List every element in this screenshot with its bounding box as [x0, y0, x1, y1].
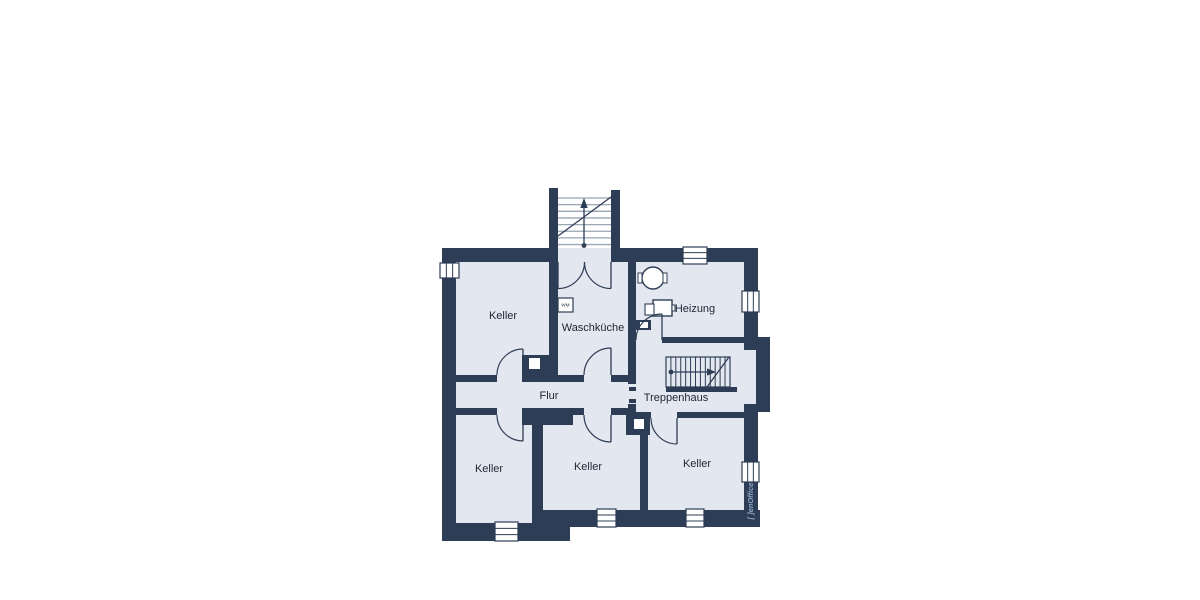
floor-door-opening — [584, 375, 611, 382]
wall-flur-top-c — [611, 375, 628, 382]
wall-exterior-stair-left — [549, 188, 558, 382]
floor-waschkueche — [558, 262, 628, 375]
room-label-keller-upper-left: Keller — [489, 310, 517, 322]
wall-exterior-bottom-step — [543, 510, 570, 541]
wall-keller-divider-left — [532, 415, 543, 523]
wall-flur-top-b — [555, 375, 584, 382]
window-right-heizung — [742, 291, 759, 312]
chimney-flue — [634, 419, 644, 429]
interior-stair-arrow-dot — [669, 370, 674, 375]
wall-exterior-top-left — [442, 248, 558, 262]
floor-door-opening — [497, 375, 523, 382]
logo-text: [ ]enOffice — [746, 483, 755, 521]
wall-exterior-left — [442, 248, 456, 541]
room-label-keller-lower-right: Keller — [683, 458, 711, 470]
wall-heizung-bottom — [662, 337, 744, 343]
wall-below-threshold — [628, 404, 636, 412]
room-label-treppenhaus: Treppenhaus — [644, 392, 709, 404]
room-label-keller-lower-middle: Keller — [574, 461, 602, 473]
wall-exterior-bottom-left — [442, 523, 543, 541]
floor-door-opening — [497, 408, 523, 415]
window-top-wall — [683, 247, 707, 264]
threshold-dash — [629, 399, 636, 403]
heater-box-small — [645, 304, 654, 315]
wall-exterior-stair-right — [611, 190, 620, 262]
boiler-nub — [638, 273, 642, 283]
heater-box — [653, 300, 672, 316]
window-right-keller — [742, 462, 759, 482]
room-label-keller-lower-left: Keller — [475, 463, 503, 475]
wall-wasch-heizung — [628, 262, 636, 384]
washing-machine-label: WM — [561, 303, 569, 308]
exterior-stair-arrow-head — [580, 198, 587, 208]
page: KellerWaschkücheHeizungFlurTreppenhausKe… — [0, 0, 1200, 600]
room-label-flur: Flur — [540, 390, 559, 402]
wall-flur-top-a — [456, 375, 497, 382]
wall-flur-bottom-a — [456, 408, 497, 415]
basement-floorplan: KellerWaschkücheHeizungFlurTreppenhausKe… — [0, 0, 1200, 600]
floor-stairwell-bump-inner — [744, 350, 756, 404]
exterior-stair-arrow-dot — [582, 243, 587, 248]
chimney-flue — [529, 358, 540, 369]
floor-door-opening — [584, 408, 611, 415]
wall-flur-bottom-c — [611, 408, 628, 415]
boiler-tank-circle — [642, 267, 664, 289]
window-bottom-middle — [597, 509, 616, 527]
window-bottom-left — [495, 522, 518, 541]
wall-flur-bottom-b — [573, 408, 584, 415]
threshold-dash — [629, 387, 636, 391]
wall-flur-bottom-block — [522, 408, 573, 425]
boiler-nub — [663, 273, 667, 283]
wall-trepp-bottom-b — [677, 412, 744, 418]
floor-stair-landing — [558, 248, 611, 262]
floor-door-opening — [651, 412, 677, 418]
room-label-waschkueche: Waschküche — [562, 322, 625, 334]
window-left-wall — [440, 263, 459, 278]
window-bottom-right — [686, 509, 704, 527]
room-label-heizung: Heizung — [675, 303, 715, 315]
